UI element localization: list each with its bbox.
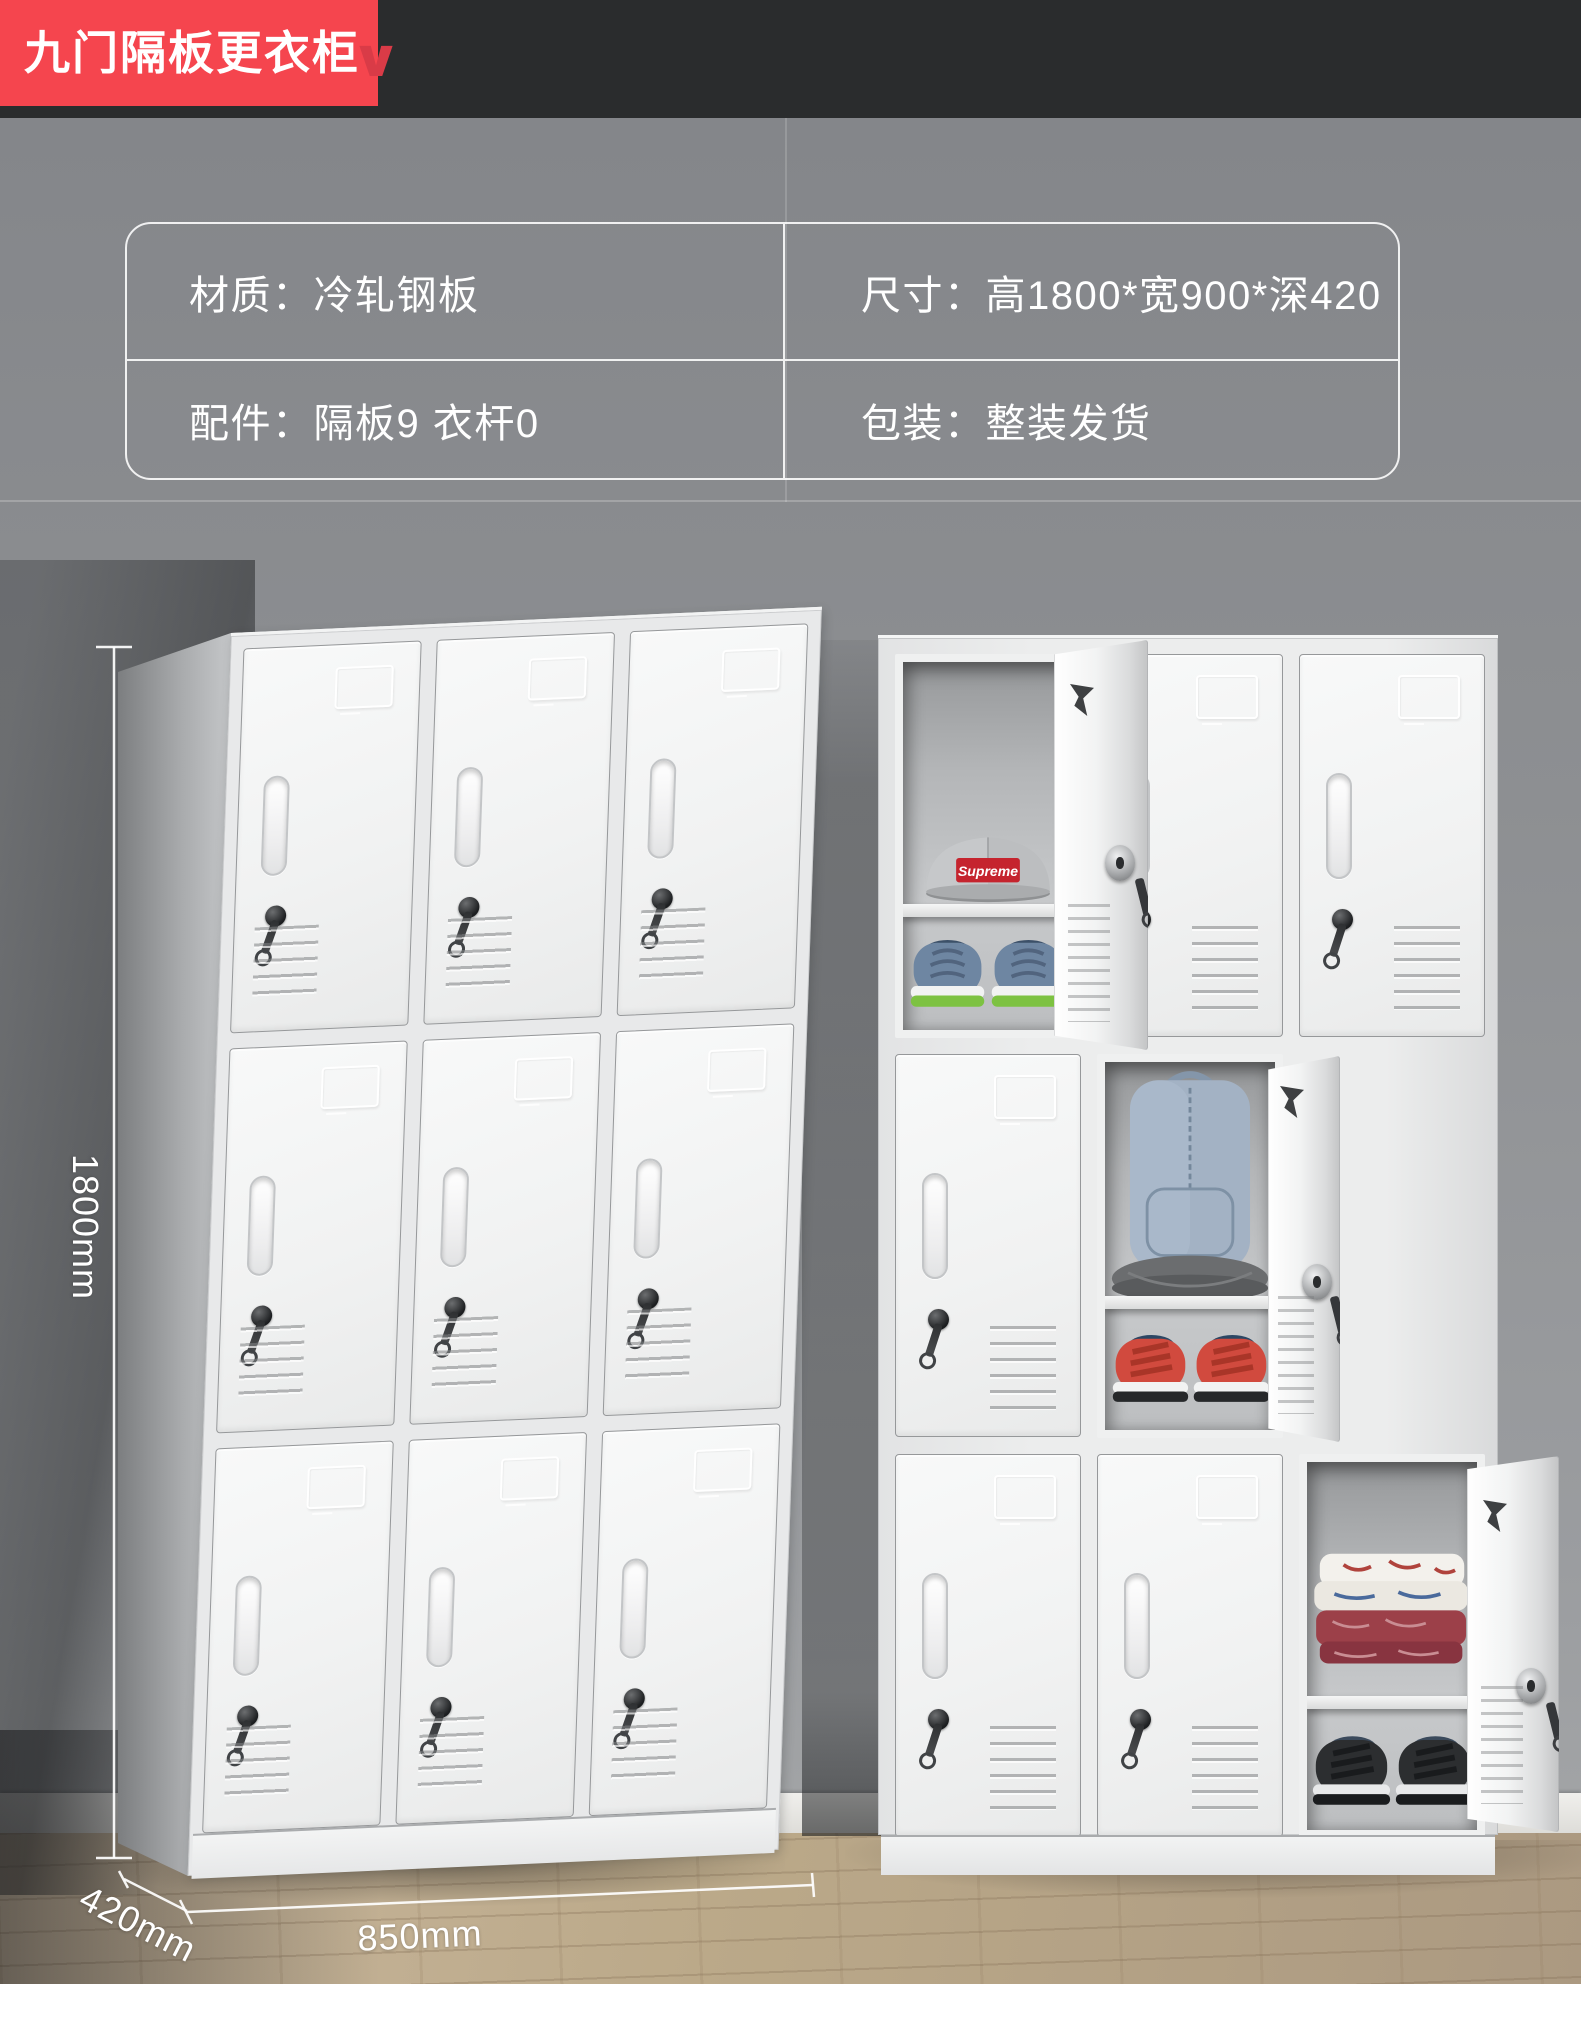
- keyhole-lock: [1130, 1709, 1151, 1730]
- open-compartment-top-left: Supreme: [895, 654, 1081, 1038]
- locker-closed: [118, 595, 838, 1895]
- spec-cell-accessories: 配件：隔板9 衣杆0: [127, 361, 783, 478]
- keyhole-lock: [1332, 909, 1353, 930]
- locker-open: Supreme: [878, 630, 1580, 1892]
- locker-door: [895, 1054, 1081, 1437]
- vent-slats: [1394, 926, 1460, 1010]
- keyhole-lock: [623, 1688, 645, 1710]
- vent-slats: [252, 925, 319, 1006]
- vent-slats: [445, 916, 512, 997]
- label-card-holder: [334, 665, 394, 710]
- door-handle-slot: [454, 767, 484, 868]
- spec-cell-material: 材质：冷轧钢板: [127, 224, 783, 361]
- label-card-holder: [514, 1056, 574, 1101]
- vent-slats: [639, 907, 706, 988]
- open-door: [1467, 1456, 1559, 1832]
- shelf: [903, 904, 1073, 917]
- locker-door: [230, 640, 422, 1033]
- vent-slats: [417, 1716, 484, 1797]
- folded-clothes-item: [1307, 1534, 1477, 1696]
- spec-cell-packaging: 包装：整装发货: [783, 361, 1398, 478]
- product-title-banner: 九门隔板更衣柜: [0, 0, 378, 106]
- chevron-down-icon: ∨: [339, 24, 414, 94]
- door-handle-slot: [647, 758, 677, 859]
- door-handle-slot: [1326, 773, 1352, 879]
- bottom-white-strip: [0, 1984, 1581, 2023]
- keyhole-lock: [928, 1709, 949, 1730]
- spec-table: 材质：冷轧钢板 尺寸：高1800*宽900*深420 配件：隔板9 衣杆0 包装…: [125, 222, 1400, 480]
- locker-door: [1299, 654, 1485, 1037]
- spec-cell-size: 尺寸：高1800*宽900*深420: [783, 224, 1398, 361]
- door-handle-slot: [426, 1567, 456, 1668]
- door-lock-disc: [1302, 1264, 1332, 1300]
- locker-door: [409, 1032, 601, 1425]
- locker-front: [188, 607, 822, 1876]
- spec-text-size: 尺寸：高1800*宽900*深420: [861, 263, 1382, 321]
- door-handle-slot: [247, 1175, 277, 1276]
- page-title: 九门隔板更衣柜: [24, 27, 360, 79]
- key: [925, 1323, 943, 1358]
- locker-door: [202, 1440, 394, 1833]
- open-compartment-middle-center: [1097, 1054, 1283, 1438]
- label-card-holder: [994, 1475, 1056, 1519]
- spec-text-accessories: 配件：隔板9 衣杆0: [189, 391, 540, 449]
- label-card-holder: [500, 1456, 560, 1501]
- label-card-holder: [994, 1075, 1056, 1119]
- label-card-holder: [320, 1065, 380, 1110]
- shelf: [1307, 1696, 1477, 1709]
- latch-notch: [1070, 684, 1094, 716]
- keyhole-lock: [928, 1309, 949, 1330]
- shelf: [1105, 1296, 1275, 1309]
- door-handle-slot: [633, 1158, 663, 1259]
- door-lock-disc: [1105, 845, 1135, 881]
- locker-door: [423, 632, 615, 1025]
- keyhole-lock: [458, 897, 480, 919]
- sneakers-item: [908, 926, 1068, 1016]
- width-dimension-label: 850mm: [334, 1909, 506, 1962]
- height-dimension-label: 1800mm: [62, 1142, 108, 1312]
- key: [925, 1723, 943, 1758]
- door-handle-slot: [922, 1173, 948, 1279]
- vent-slats: [625, 1307, 692, 1388]
- vent-slats: [1278, 1296, 1314, 1414]
- locker-body: Supreme: [878, 635, 1498, 1835]
- locker-door: [1097, 1454, 1283, 1837]
- label-card-holder: [528, 656, 588, 701]
- keyhole-lock: [237, 1705, 259, 1727]
- vent-slats: [1192, 1726, 1258, 1810]
- latch-notch: [1280, 1086, 1304, 1118]
- locker-base: [881, 1835, 1495, 1875]
- keyhole-lock: [251, 1305, 273, 1327]
- open-compartment-bottom-right: [1299, 1454, 1485, 1838]
- keyhole-lock: [265, 905, 287, 927]
- vent-slats: [1068, 904, 1110, 1022]
- product-infographic: { "header": { "title": "九门隔板更衣柜", "chevr…: [0, 0, 1581, 2023]
- backpack-item: [1109, 1068, 1271, 1306]
- cap-logo-text: Supreme: [958, 863, 1018, 879]
- locker-door: [603, 1023, 795, 1416]
- spec-text-packaging: 包装：整装发货: [861, 391, 1152, 449]
- keyhole-lock: [444, 1297, 466, 1319]
- vent-slats: [1192, 926, 1258, 1010]
- vent-slats: [611, 1707, 678, 1788]
- red-shoes-item: [1110, 1320, 1270, 1414]
- key: [1329, 923, 1347, 958]
- label-card-holder: [721, 648, 781, 693]
- door-handle-slot: [619, 1558, 649, 1659]
- black-shoes-item: [1310, 1722, 1474, 1816]
- door-handle-slot: [922, 1573, 948, 1679]
- key: [1127, 1723, 1145, 1758]
- latch-notch: [1483, 1500, 1507, 1532]
- vent-slats: [990, 1326, 1056, 1410]
- keyhole-lock: [430, 1697, 452, 1719]
- locker-door: [589, 1423, 781, 1816]
- locker-door: [216, 1040, 408, 1433]
- open-door: [1054, 640, 1148, 1050]
- cap-item: Supreme: [913, 812, 1063, 904]
- door-handle-slot: [440, 1167, 470, 1268]
- key: [1546, 1701, 1564, 1740]
- door-handle-slot: [233, 1575, 263, 1676]
- vent-slats: [431, 1316, 498, 1397]
- label-card-holder: [1398, 675, 1460, 719]
- wall-seam-horizontal: [0, 500, 1581, 502]
- vent-slats: [238, 1325, 305, 1406]
- door-handle-slot: [261, 775, 291, 876]
- spec-text-material: 材质：冷轧钢板: [189, 263, 480, 321]
- locker-door: [895, 1454, 1081, 1837]
- label-card-holder: [306, 1465, 366, 1510]
- label-card-holder: [1196, 675, 1258, 719]
- label-card-holder: [707, 1048, 767, 1093]
- door-handle-slot: [1124, 1573, 1150, 1679]
- label-card-holder: [693, 1448, 753, 1493]
- open-door: [1268, 1056, 1340, 1442]
- locker-door: [617, 623, 809, 1016]
- label-card-holder: [1196, 1475, 1258, 1519]
- vent-slats: [224, 1725, 291, 1806]
- vent-slats: [990, 1726, 1056, 1810]
- keyhole-lock: [637, 1288, 659, 1310]
- keyhole-lock: [651, 888, 673, 910]
- vent-slats: [1481, 1686, 1523, 1804]
- locker-door: [395, 1432, 587, 1825]
